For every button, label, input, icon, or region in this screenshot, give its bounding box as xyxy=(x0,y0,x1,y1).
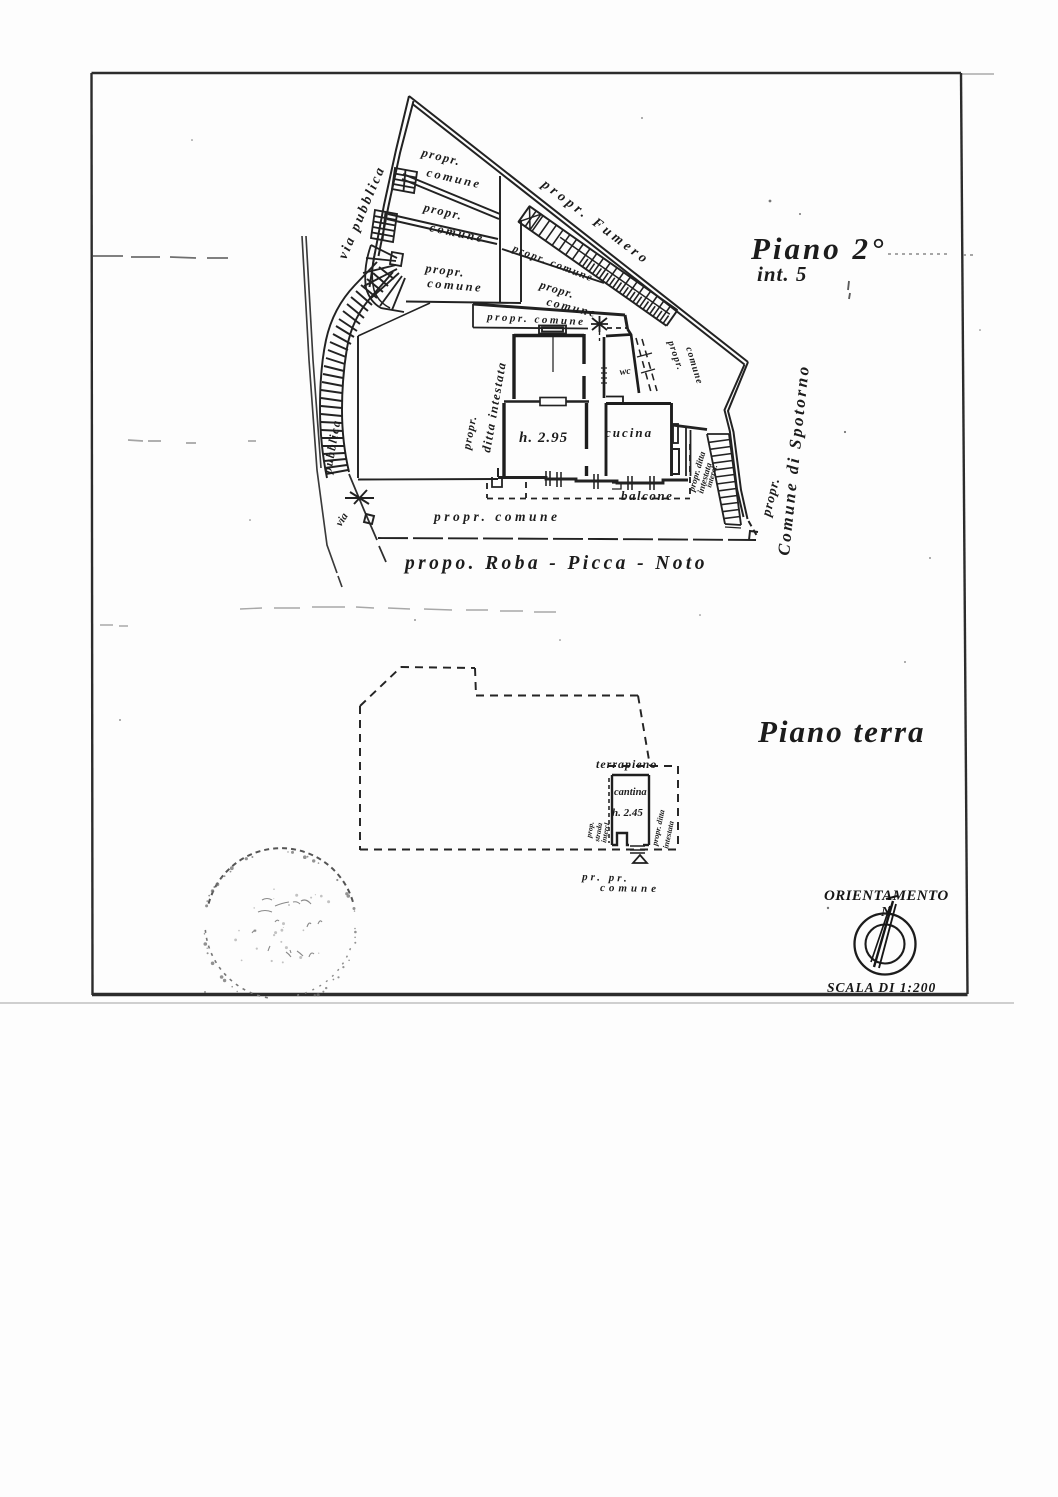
svg-text:propo. Roba - Picca - Noto: propo. Roba - Picca - Noto xyxy=(403,553,708,574)
svg-text:Piano terra: Piano terra xyxy=(757,714,926,749)
svg-text:h. 2.95: h. 2.95 xyxy=(519,430,568,446)
svg-text:Piano 2°: Piano 2° xyxy=(750,231,886,266)
svg-text:SCALA DI 1:200: SCALA DI 1:200 xyxy=(827,980,936,995)
svg-text:wc: wc xyxy=(619,365,632,378)
svg-text:N: N xyxy=(880,905,892,920)
svg-text:cantina: cantina xyxy=(614,787,647,798)
svg-text:propr. comune: propr. comune xyxy=(433,509,561,524)
svg-text:int. 5: int. 5 xyxy=(757,262,807,286)
svg-text:comune: comune xyxy=(600,882,660,895)
svg-text:balcone: balcone xyxy=(621,488,673,503)
svg-text:ORIENTAMENTO: ORIENTAMENTO xyxy=(824,888,949,904)
svg-text:terrapieno: terrapieno xyxy=(596,757,657,771)
svg-text:cucina: cucina xyxy=(605,425,653,440)
svg-text:h. 2.45: h. 2.45 xyxy=(612,807,643,819)
